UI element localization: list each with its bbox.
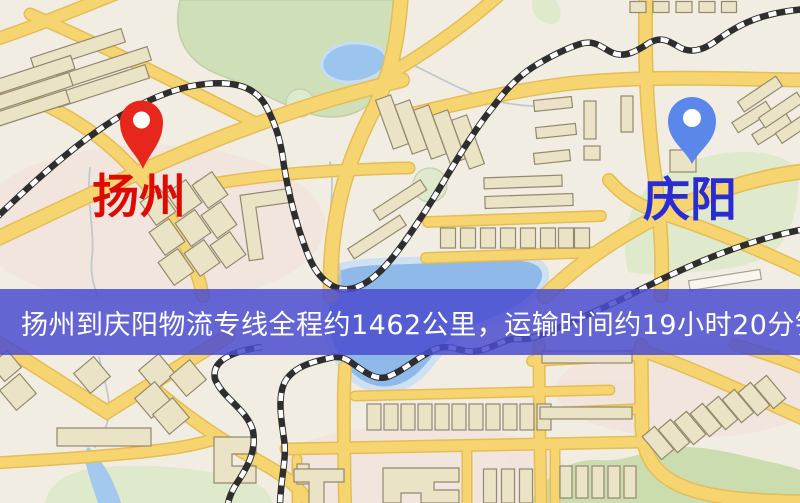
- route-banner: 扬州到庆阳物流专线全程约1462公里，运输时间约19小时20分钟.: [0, 289, 800, 355]
- origin-label: 扬州: [92, 174, 186, 221]
- map-canvas[interactable]: 扬州 庆阳 扬州到庆阳物流专线全程约1462公里，运输时间约19小时20分钟.: [0, 0, 800, 503]
- route-banner-text: 扬州到庆阳物流专线全程约1462公里，运输时间约19小时20分钟.: [0, 303, 800, 342]
- map-graphics: [0, 0, 800, 503]
- pond: [322, 43, 387, 82]
- destination-label: 庆阳: [643, 177, 737, 224]
